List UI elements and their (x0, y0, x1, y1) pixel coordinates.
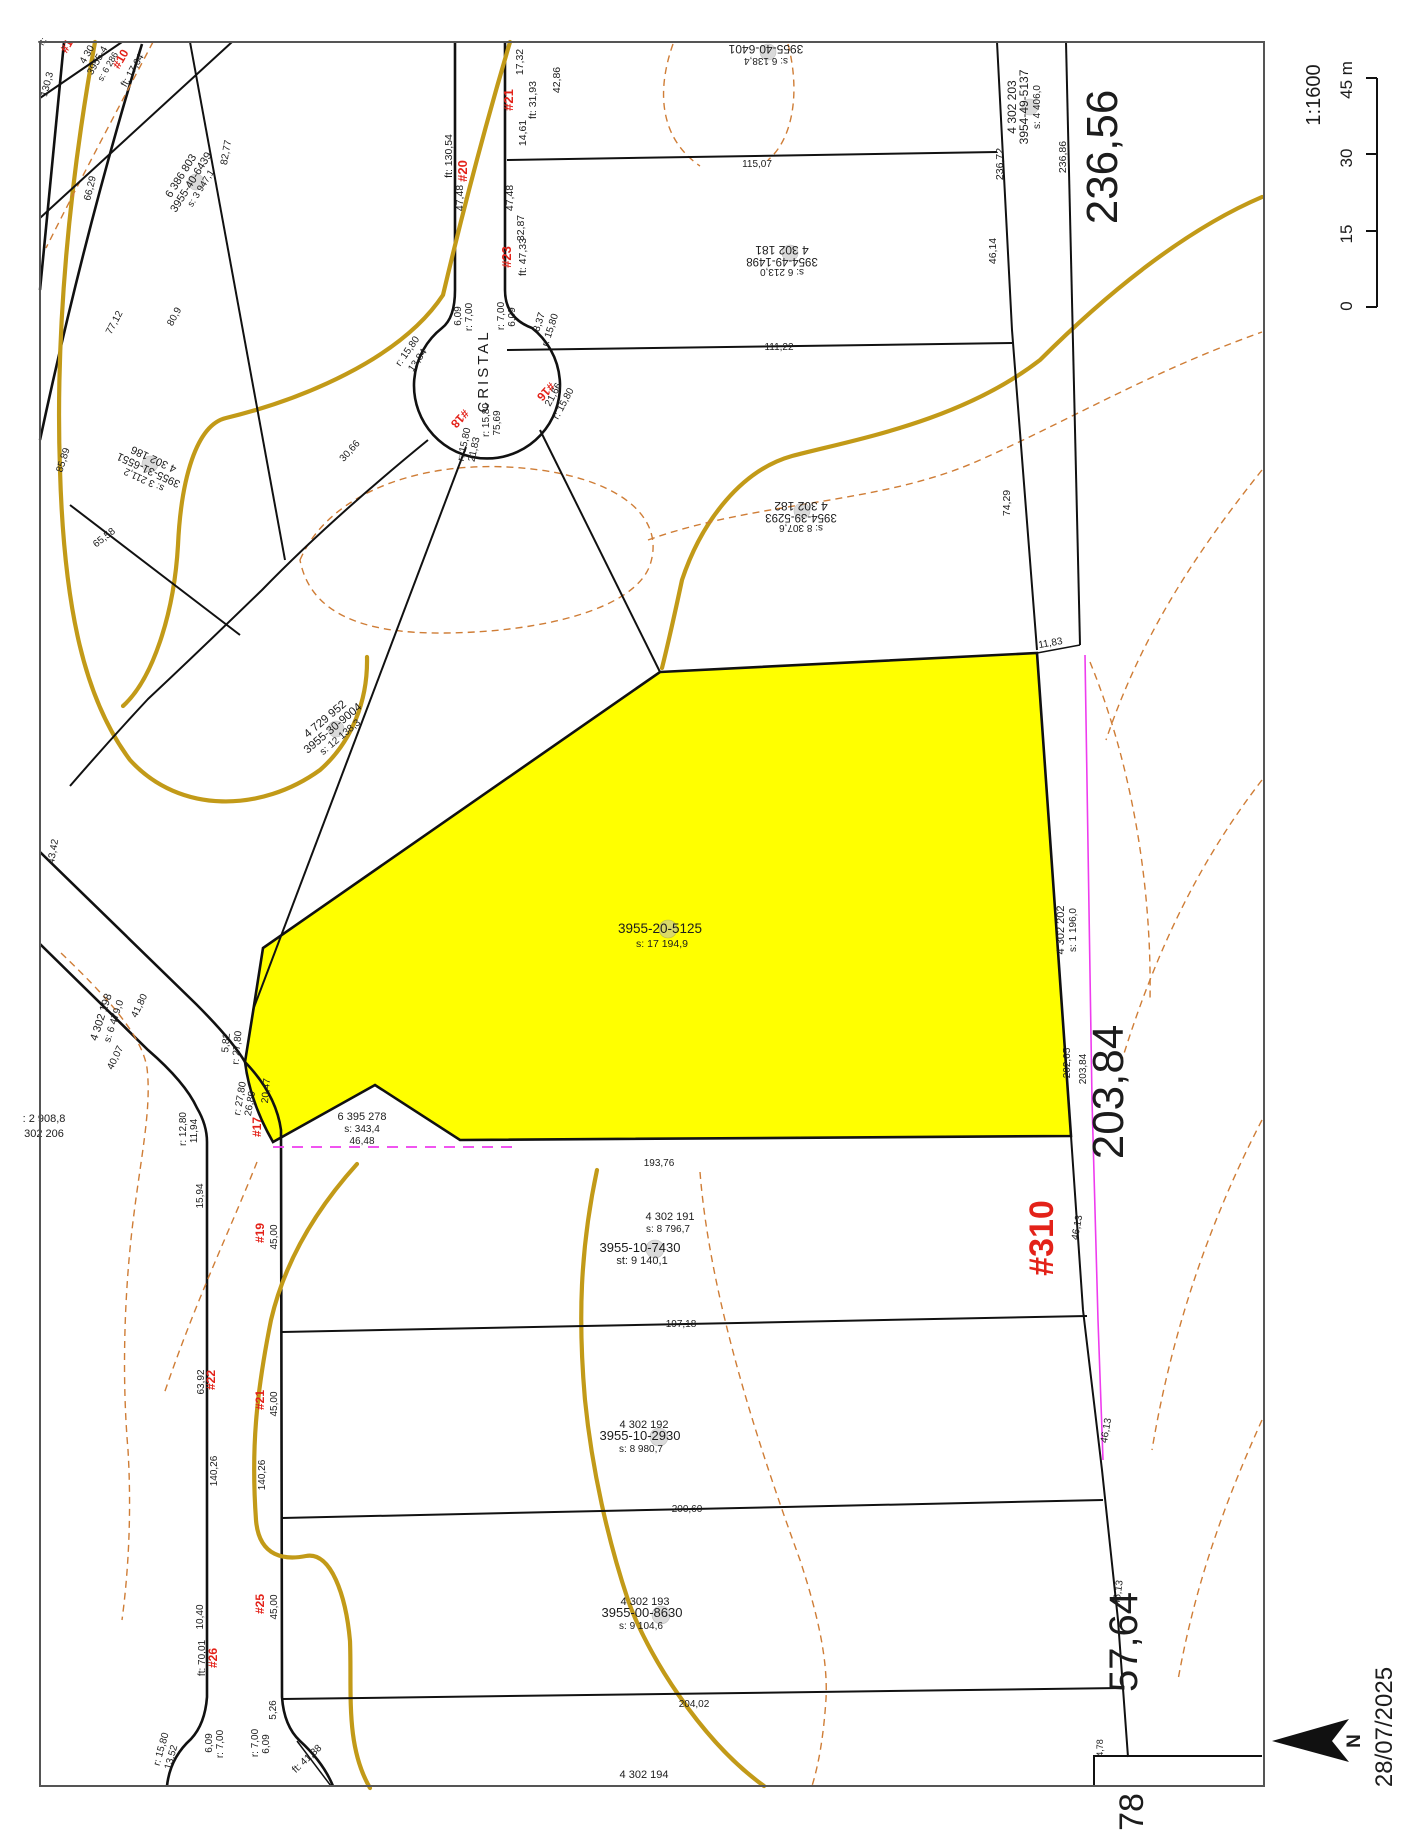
dim-label: 45,00 (269, 1391, 280, 1416)
parcel-id: 4 302 202 (1055, 906, 1067, 955)
street-number: #17 (250, 1117, 264, 1137)
parcel-area: s: 6 138,4 (744, 55, 788, 66)
north-label: N (1344, 1734, 1365, 1748)
parcel-id: 4 302 181 (755, 243, 809, 257)
street-number: #20 (455, 160, 470, 182)
dim-label: 6,09 (507, 307, 518, 327)
dim-label: 203,84 (1078, 1053, 1089, 1084)
measure-corner-78: 78 (1113, 1793, 1151, 1830)
parcel-code: 3954-49-1498 (746, 255, 818, 267)
street-number: #25 (253, 1594, 267, 1614)
parcel-id: 4 302 191 (646, 1211, 695, 1223)
dim-label: 46,48 (349, 1136, 374, 1147)
dim-label: 204,02 (679, 1699, 710, 1710)
street-number: #19 (253, 1223, 267, 1243)
dim-label: 17,32 (514, 49, 526, 75)
dim-label: 11,94 (189, 1118, 200, 1143)
dim-label: 63,92 (196, 1369, 207, 1394)
parcel-area: s: 9 104,6 (619, 1621, 663, 1632)
map-canvas: 236,56 203,84 57,64 78 #310 3955-20-5125… (0, 0, 1410, 1830)
parcel-id: 6 395 278 (338, 1111, 387, 1123)
selected-parcel-id: 3955-20-5125 (618, 921, 702, 936)
map-date: 28/07/2025 (1371, 1667, 1398, 1787)
dim-label: 75,69 (492, 410, 503, 435)
radius-label: r: 7,00 (496, 301, 507, 330)
parcel-area-clipped: : 2 908,8 (23, 1113, 66, 1125)
dim-label: 111,22 (764, 342, 794, 353)
street-number: #21 (501, 89, 516, 111)
dim-label: ft: 47,33 (517, 238, 529, 276)
street-number-310: #310 (1023, 1200, 1061, 1276)
dim-label: 6,09 (204, 1733, 215, 1753)
parcel-code: 3954-39-5293 (765, 511, 837, 523)
radius-label: r: 12,80 (178, 1112, 189, 1146)
scale-tick-0: 0 (1337, 301, 1356, 310)
dim-label: 6,09 (453, 306, 464, 326)
dim-label: 5,26 (268, 1700, 279, 1720)
street-name-cristal: CRISTAL (475, 329, 492, 412)
parcel-area: s: 8 980,7 (619, 1444, 663, 1455)
scale-tick-30: 30 (1337, 149, 1356, 168)
radius-label: r: 7,00 (250, 1728, 261, 1757)
dim-label: 74,29 (1001, 490, 1013, 516)
street-number: #26 (206, 1648, 220, 1668)
radius-label: r: 7,00 (464, 302, 475, 331)
dim-label: 46,14 (987, 238, 999, 264)
dim-label: 45,00 (269, 1224, 280, 1249)
measure-236-56: 236,56 (1078, 90, 1127, 225)
radius-label: r: 7,00 (215, 1729, 226, 1758)
parcel-area: s: 343,4 (344, 1124, 380, 1135)
parcel-area: s: 8 307,6 (779, 522, 823, 533)
radius-label: r: 15,80 (481, 403, 492, 437)
parcel-code: 3955-10-2930 (600, 1428, 681, 1443)
dim-label: ft: 31,93 (527, 81, 539, 119)
parcel-area: st: 9 140,1 (616, 1255, 667, 1267)
dim-label: 20,47 (260, 1077, 273, 1103)
dim-label: 47,48 (504, 185, 516, 211)
dim-label: 202,65 (1062, 1047, 1073, 1078)
dim-label: 6,09 (261, 1734, 272, 1754)
scale-tick-15: 15 (1337, 225, 1356, 244)
street-number: #23 (499, 246, 514, 268)
dim-label: 14,61 (517, 120, 529, 146)
dim-label: 47,48 (454, 185, 466, 211)
parcel-id: 4 302 194 (620, 1769, 669, 1781)
measure-57-64: 57,64 (1102, 1592, 1146, 1692)
dim-label: 193,76 (644, 1158, 675, 1169)
dim-label: 45,00 (269, 1594, 280, 1619)
dim-label: 15,94 (195, 1183, 206, 1208)
parcel-code: 3955-10-7430 (600, 1240, 681, 1255)
dim-label: 140,26 (209, 1455, 220, 1486)
parcel-id: 4 302 182 (774, 499, 828, 513)
dim-label: 42,86 (551, 67, 563, 93)
parcel-area: s: 1 196,0 (1068, 908, 1079, 952)
parcel-code: 3955-00-8630 (602, 1605, 683, 1620)
parcel-id-clipped: 302 206 (24, 1128, 64, 1140)
cadastral-map-page: 236,56 203,84 57,64 78 #310 3955-20-5125… (0, 0, 1410, 1830)
selected-parcel-area: s: 17 194,9 (636, 938, 688, 950)
dim-label: ft: 130,54 (443, 134, 455, 178)
dim-label: 140,26 (257, 1459, 268, 1490)
scale-tick-45m: 45 m (1337, 61, 1356, 99)
dim-label: 4,78 (1095, 1739, 1105, 1757)
dim-label: 197,18 (666, 1319, 697, 1330)
dim-label: 236,86 (1057, 141, 1069, 173)
scale-ratio: 1:1600 (1303, 64, 1325, 125)
dim-label: 32,87 (515, 215, 527, 241)
measure-203-84: 203,84 (1084, 1025, 1133, 1160)
parcel-area: s: 4 406,0 (1032, 85, 1043, 129)
parcel-code: 3955-40-6401 (728, 42, 803, 56)
dim-label: 200,60 (672, 1504, 703, 1515)
parcel-area: s: 6 213,0 (760, 266, 804, 277)
street-number: #21 (253, 1390, 267, 1410)
parcel-area: s: 8 796,7 (646, 1224, 690, 1235)
dim-label: 236,72 (994, 148, 1006, 180)
parcel-code: 3954-49-5137 (1017, 69, 1031, 144)
dim-label: 10,40 (195, 1604, 206, 1629)
dim-label: 115,07 (742, 159, 772, 170)
